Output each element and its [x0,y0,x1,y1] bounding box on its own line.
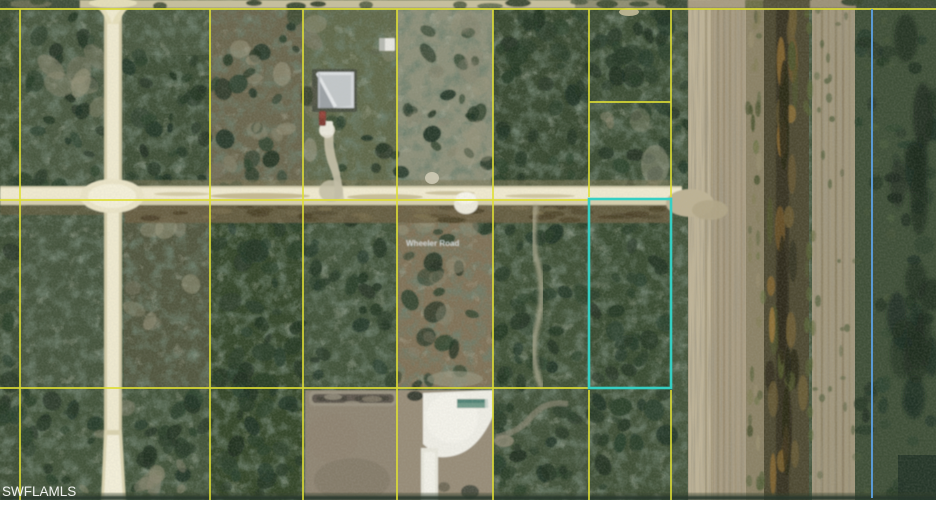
svg-text:Wheeler Road: Wheeler Road [406,239,459,248]
svg-text:SWFLAMLS: SWFLAMLS [2,484,76,499]
